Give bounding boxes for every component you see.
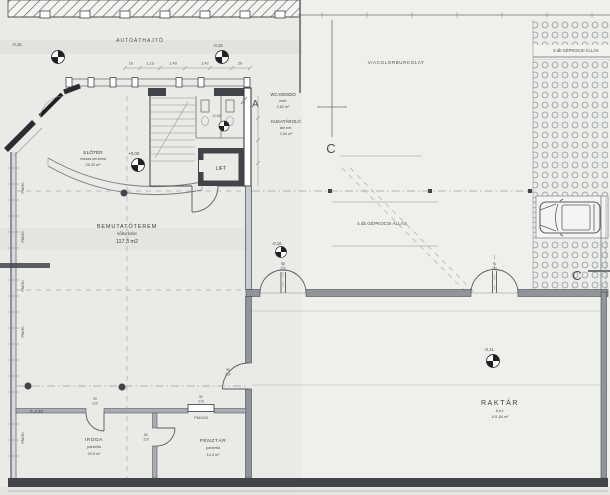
dim-text: 1,42	[201, 61, 210, 66]
svg-text:mázas kerámia: mázas kerámia	[80, 157, 107, 161]
door-size-label: 90	[93, 397, 97, 401]
svg-text:kőburkolat: kőburkolat	[117, 231, 137, 236]
dim-text: 1,40	[169, 61, 178, 66]
door-label-pm100: PM/100	[194, 415, 209, 420]
site-label-viacolor: VIACOLORBURKOLAT	[368, 60, 425, 65]
svg-text:WC-MOSDÓ: WC-MOSDÓ	[270, 92, 296, 97]
lift-shaft: LIFT	[198, 148, 244, 186]
door-size-label: 210	[280, 267, 286, 271]
scan-paper-shading	[0, 0, 610, 495]
level-text: -0,16	[272, 241, 282, 246]
south-wall	[8, 478, 608, 487]
dim-text: 20	[238, 61, 243, 66]
svg-text:parketta: parketta	[206, 446, 221, 450]
level-text: +0,00	[128, 151, 140, 156]
section-letter-c2: C	[572, 268, 581, 283]
svg-text:KUKATÁROLÓ: KUKATÁROLÓ	[271, 119, 301, 124]
svg-text:b.b.f.: b.b.f.	[496, 409, 504, 413]
level-marker	[275, 246, 286, 257]
site-label-parking9: 9 db GÉPKOCSI ÁLLÁS	[553, 48, 599, 53]
svg-text:14,3 m²: 14,3 m²	[207, 453, 221, 457]
svg-text:IRODA: IRODA	[85, 437, 103, 443]
window-label-pm90: PM/90	[21, 281, 25, 292]
door-size-label: 210	[225, 373, 231, 377]
section-letter-c1: C	[326, 141, 335, 156]
level-text: -0,16	[213, 43, 223, 48]
door-size-label: 90	[226, 368, 230, 372]
window-label-pm90: PM/90	[21, 433, 25, 444]
level-marker	[132, 159, 145, 172]
floor-plan-svg: C C 90 210	[0, 0, 610, 495]
door-size-label: 90	[493, 262, 497, 266]
viacolor-paving-area	[533, 20, 610, 292]
column	[119, 384, 126, 391]
level-text: -0,15	[12, 42, 22, 47]
svg-text:117.3 m2: 117.3 m2	[116, 239, 138, 245]
svg-text:101,80 m²: 101,80 m²	[491, 415, 509, 419]
svg-text:2,94 m²: 2,94 m²	[280, 132, 294, 136]
door-size-label: 80	[144, 433, 148, 437]
door-size-label: 90	[281, 262, 285, 266]
level-text: -0,11	[484, 347, 494, 352]
room-label-lift: LIFT	[216, 166, 226, 172]
level-marker-wc	[219, 121, 229, 131]
dim-text: 10	[129, 61, 134, 66]
floor-plan-scan: C C 90 210	[0, 0, 610, 495]
site-label-parking4: 4 db GÉPKOCSI ÁLLÁS	[357, 220, 407, 226]
site-label-autoathajto: AUTÓÁTHAJTÓ	[116, 37, 164, 44]
svg-text:BEMUTATÓTEREM: BEMUTATÓTEREM	[97, 223, 157, 230]
section-letter-a: A	[252, 99, 259, 110]
door-size-label: 210	[143, 438, 149, 442]
level-marker	[487, 355, 500, 368]
door-size-label: 210	[492, 267, 498, 271]
svg-text:25,33 m²: 25,33 m²	[86, 163, 102, 167]
svg-text:RAKTÁR: RAKTÁR	[481, 398, 519, 407]
note-height: h=2,40	[30, 409, 44, 414]
svg-text:ELŐTÉR: ELŐTÉR	[83, 149, 103, 156]
svg-text:24,9 m²: 24,9 m²	[88, 452, 102, 456]
door-size-label: 210	[92, 402, 98, 406]
svg-text:PÉNZTÁR: PÉNZTÁR	[200, 437, 227, 444]
level-text-wc: -0,16	[212, 114, 221, 118]
door-size-label: 90	[199, 395, 203, 399]
svg-text:parketta: parketta	[87, 445, 102, 449]
window-label-pm90: PM/90	[21, 183, 25, 194]
window-label-pm90: PM/90	[21, 232, 25, 243]
svg-text:sim.bet.: sim.bet.	[280, 126, 293, 130]
column	[121, 190, 128, 197]
level-marker	[216, 51, 229, 64]
window-label-pm90: PM/90	[21, 327, 25, 338]
canopy-hatch-band	[8, 0, 300, 18]
dim-text: 1,13	[146, 61, 155, 66]
svg-text:mett.: mett.	[279, 99, 287, 103]
parking-space-car	[536, 196, 608, 238]
column	[25, 383, 32, 390]
door-size-label: 210	[198, 400, 204, 404]
svg-text:2,82 m²: 2,82 m²	[277, 105, 291, 109]
level-marker	[52, 51, 65, 64]
